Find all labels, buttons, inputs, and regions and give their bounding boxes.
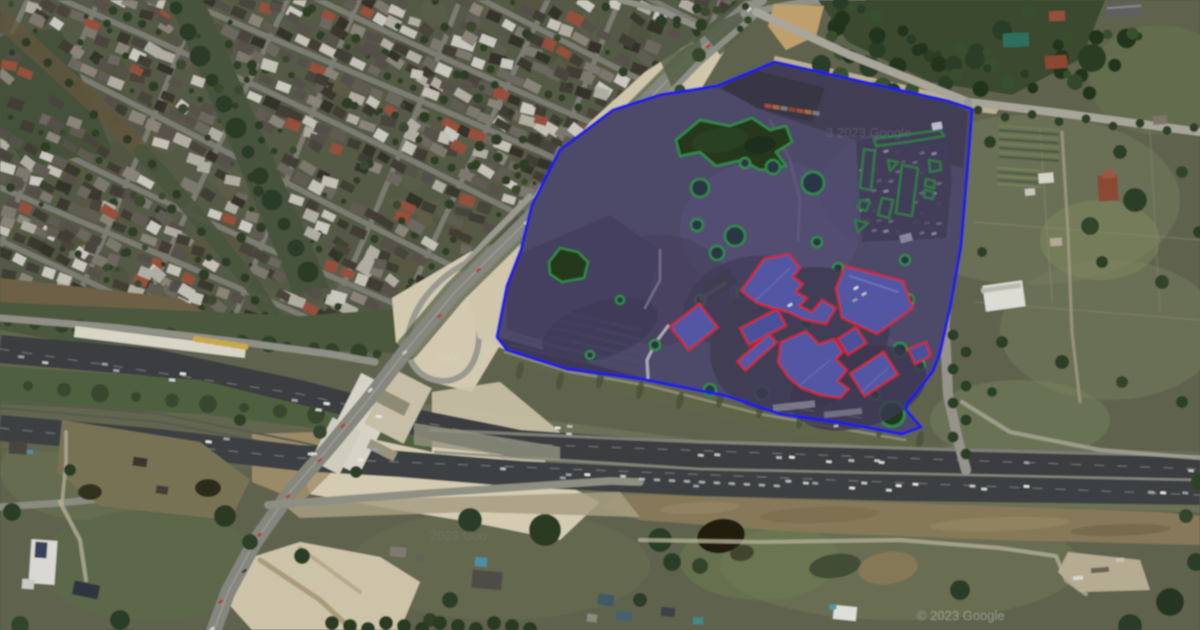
svg-text:© 2023 Google: © 2023 Google bbox=[917, 608, 1005, 623]
svg-text:ogle: ogle bbox=[436, 350, 461, 365]
svg-text:2023 Goo: 2023 Goo bbox=[430, 528, 487, 543]
svg-text:3 2023 Google: 3 2023 Google bbox=[826, 125, 911, 140]
